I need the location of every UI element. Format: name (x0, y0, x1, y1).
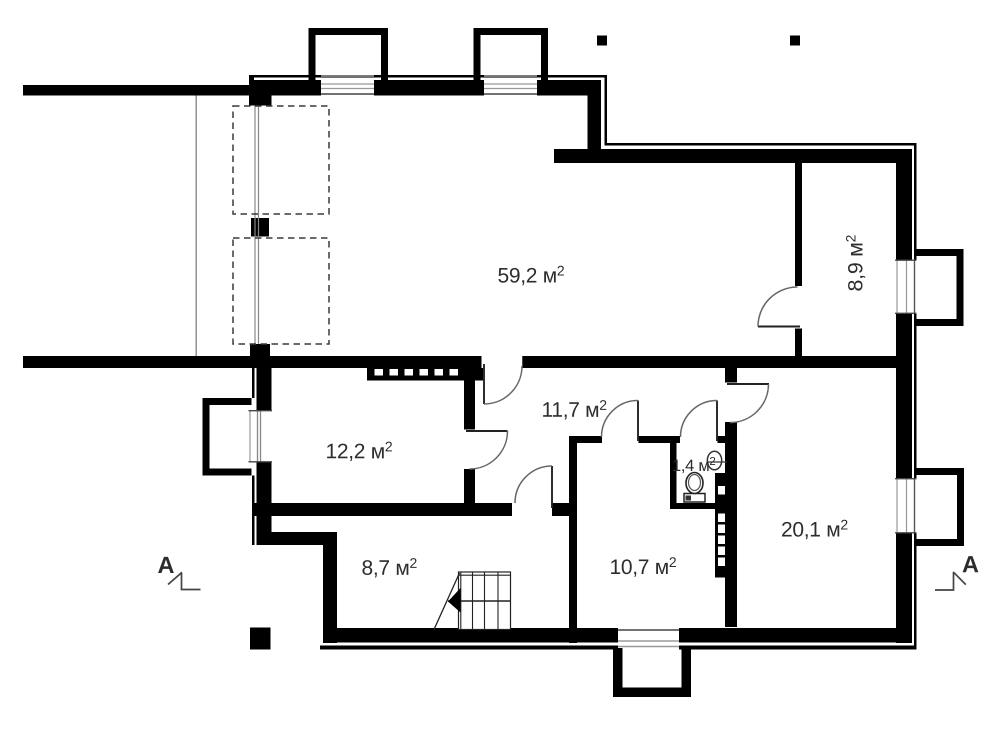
svg-text:12,2 м2: 12,2 м2 (325, 438, 392, 463)
svg-text:20,1 м2: 20,1 м2 (781, 517, 848, 542)
svg-text:8,7 м2: 8,7 м2 (361, 555, 417, 580)
svg-text:1,4 м2: 1,4 м2 (672, 456, 715, 475)
svg-text:10,7 м2: 10,7 м2 (609, 554, 676, 579)
svg-text:A: A (962, 551, 979, 577)
svg-text:59,2 м2: 59,2 м2 (497, 263, 564, 288)
svg-text:8,9 м2: 8,9 м2 (843, 234, 868, 291)
svg-text:A: A (157, 552, 174, 578)
svg-text:11,7 м2: 11,7 м2 (541, 397, 607, 422)
